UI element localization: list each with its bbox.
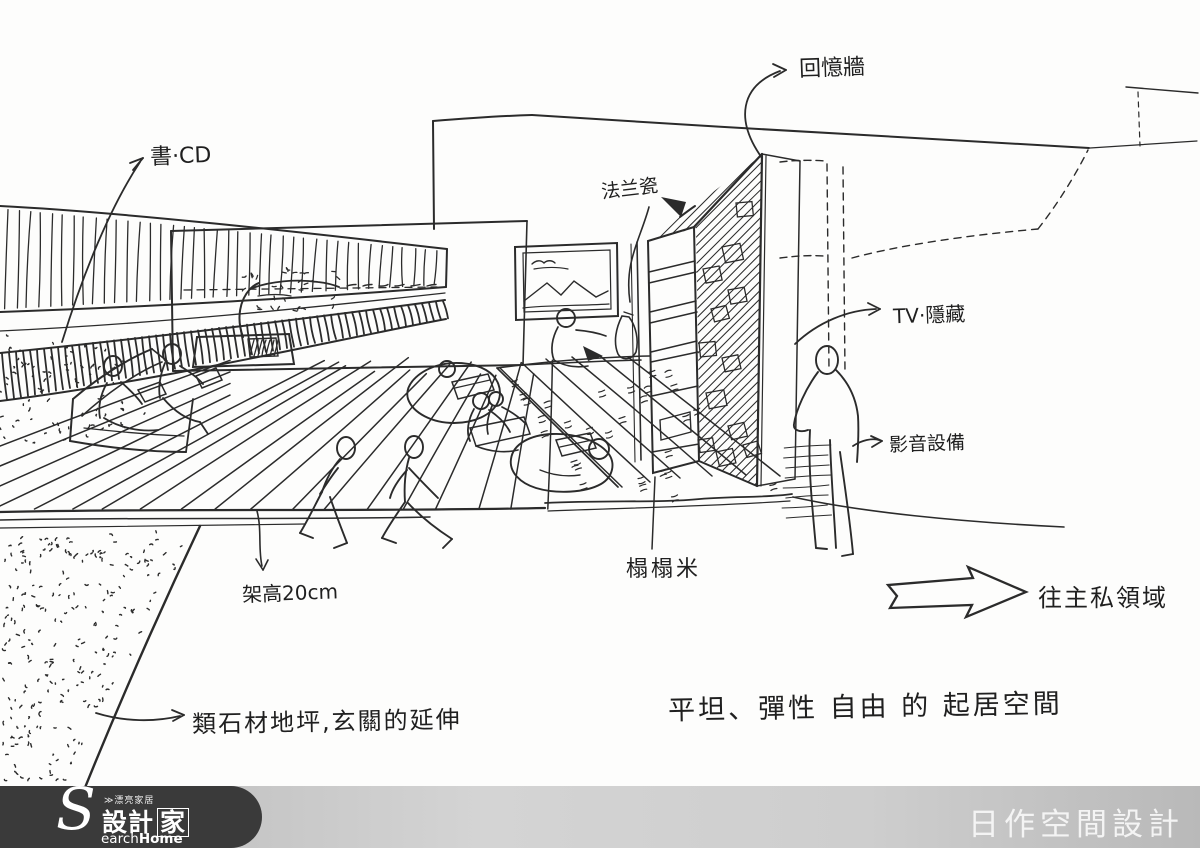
logo-subtext: earchHome [101,831,183,847]
footer-watermark-bar: S ≫漂亮家居 設計家 earchHome 日作空間設計 [0,786,1200,848]
label-stone-floor: 類石材地坪,玄關的延伸 [192,700,462,740]
label-tv-hidden: TV·隱藏 [893,298,966,330]
display-bookcase [648,227,699,473]
label-living-space: 平坦、彈性 自由 的 起居空間 [668,682,1063,728]
label-to-private-area: 往主私領域 [1038,578,1168,613]
searchhome-logo: S ≫漂亮家居 設計家 earchHome [0,786,262,848]
logo-sub-light: earch [101,831,139,847]
company-watermark: 日作空間設計 [968,799,1184,844]
logo-sub-bold: Home [139,831,183,847]
label-raised-floor: 架高20cm [242,575,339,607]
memory-wall-hatch [642,29,778,633]
sketch-page: 書·CD 回憶牆 法兰瓷 TV·隱藏 影音設備 榻榻米 架高20cm 類石材地坪… [0,0,1200,848]
label-tatami: 榻榻米 [626,551,701,583]
tatami-mats [497,356,832,518]
label-av-equipment: 影音設備 [889,428,966,458]
label-memory-wall: 回憶牆 [798,49,865,83]
logo-s-glyph: S [56,778,96,840]
label-book-cd: 書·CD [149,137,211,171]
to-private-block-arrow-icon [888,567,1026,617]
